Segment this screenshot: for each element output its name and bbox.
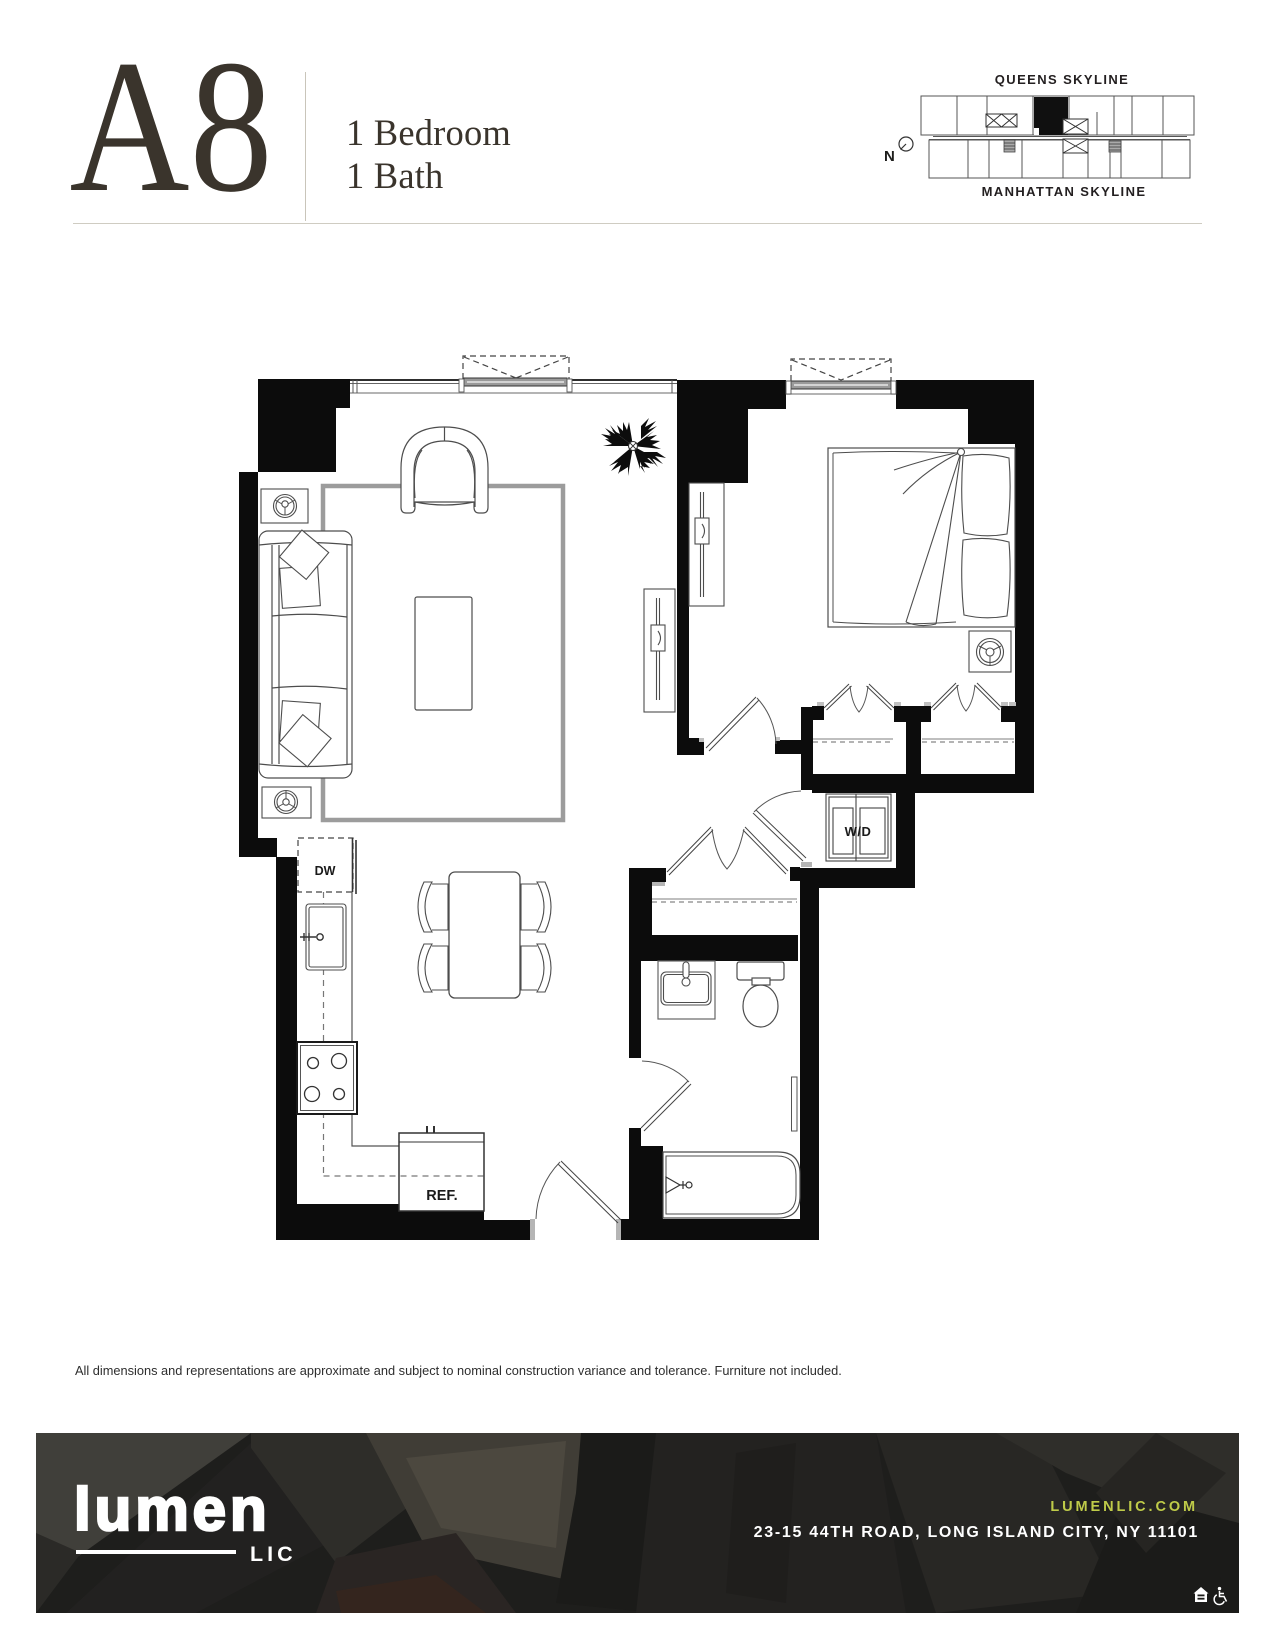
- svg-text:DW: DW: [315, 864, 336, 878]
- svg-text:QUEENS SKYLINE: QUEENS SKYLINE: [995, 72, 1129, 87]
- svg-text:W/D: W/D: [845, 824, 872, 839]
- svg-text:MANHATTAN SKYLINE: MANHATTAN SKYLINE: [982, 184, 1147, 199]
- svg-text:N: N: [884, 148, 895, 165]
- svg-text:REF.: REF.: [426, 1188, 457, 1204]
